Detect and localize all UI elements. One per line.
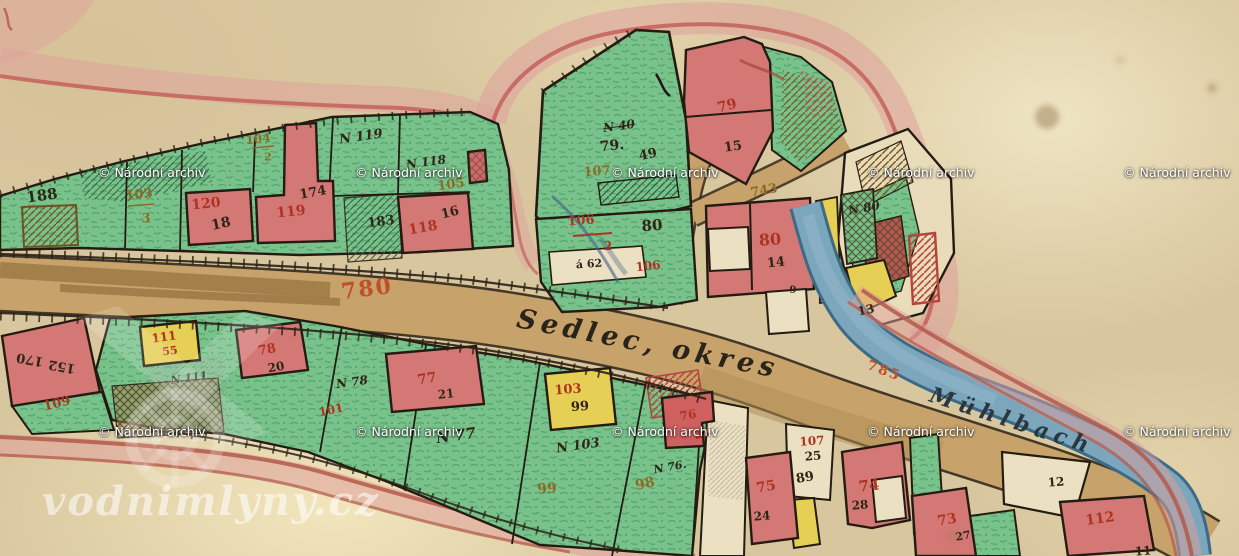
map-drawing bbox=[0, 0, 1239, 556]
cadastral-map-sheet: 1881033120181042174119N 119N 11810518311… bbox=[0, 0, 1239, 556]
